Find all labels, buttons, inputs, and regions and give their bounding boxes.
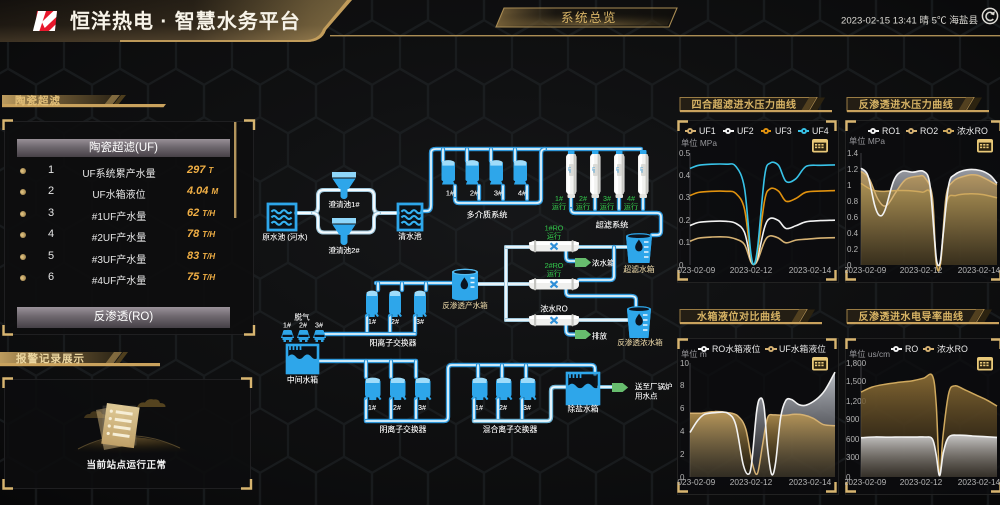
svg-text:RO1: RO1: [882, 126, 900, 136]
svg-text:1#: 1#: [283, 321, 291, 330]
svg-text:1: 1: [847, 181, 852, 190]
svg-text:运行: 运行: [576, 202, 590, 211]
svg-text:单位 us/cm: 单位 us/cm: [849, 349, 890, 359]
svg-text:原水池 (河水): 原水池 (河水): [262, 232, 308, 242]
svg-text:单位 MPa: 单位 MPa: [681, 138, 717, 148]
svg-text:反渗透浓水箱: 反渗透浓水箱: [617, 337, 663, 347]
svg-text:2#: 2#: [393, 403, 401, 412]
svg-text:2#: 2#: [470, 189, 479, 198]
svg-text:陶瓷超滤: 陶瓷超滤: [15, 94, 61, 107]
svg-text:2023-02-09: 2023-02-09: [677, 477, 716, 487]
svg-text:单位 m: 单位 m: [681, 349, 707, 359]
svg-text:2#: 2#: [299, 321, 307, 330]
svg-text:900: 900: [846, 415, 860, 424]
svg-text:1,800: 1,800: [846, 359, 867, 368]
svg-text:多介质系统: 多介质系统: [467, 210, 508, 220]
svg-text:1#: 1#: [368, 403, 376, 412]
svg-text:四合超滤进水压力曲线: 四合超滤进水压力曲线: [692, 98, 797, 111]
svg-text:运行: 运行: [547, 269, 561, 278]
svg-text:0.6: 0.6: [847, 213, 859, 222]
svg-text:用水点: 用水点: [635, 391, 658, 401]
svg-text:RO: RO: [905, 344, 918, 354]
svg-text:UF水箱液位: UF水箱液位: [779, 343, 826, 354]
svg-text:UF1: UF1: [699, 126, 716, 136]
svg-text:UF4: UF4: [812, 126, 829, 136]
svg-text:阳离子交换器: 阳离子交换器: [370, 338, 417, 348]
svg-text:0.2: 0.2: [847, 245, 859, 254]
svg-text:2#: 2#: [391, 317, 399, 326]
svg-text:1,500: 1,500: [846, 377, 867, 386]
svg-text:2023-02-14: 2023-02-14: [958, 477, 1000, 487]
svg-text:UF: UF: [591, 167, 596, 173]
svg-text:2023-02-09: 2023-02-09: [677, 265, 716, 275]
svg-text:阴离子交换器: 阴离子交换器: [380, 424, 427, 434]
svg-text:0.1: 0.1: [679, 238, 691, 247]
svg-text:浓水RO: 浓水RO: [540, 304, 567, 314]
svg-text:1.2: 1.2: [847, 165, 859, 174]
svg-text:2023-02-15 13:41 晴 5℃ 海盐县: 2023-02-15 13:41 晴 5℃ 海盐县: [841, 15, 978, 27]
svg-text:3#: 3#: [416, 317, 424, 326]
svg-text:恒洋热电 · 智慧水务平台: 恒洋热电 · 智慧水务平台: [70, 9, 301, 33]
svg-text:0.4: 0.4: [847, 229, 859, 238]
svg-text:UF: UF: [567, 167, 572, 173]
svg-text:0.3: 0.3: [679, 193, 691, 202]
svg-text:清水池: 清水池: [398, 231, 422, 241]
svg-text:单位 MPa: 单位 MPa: [849, 136, 885, 146]
svg-text:8: 8: [680, 381, 685, 390]
svg-text:运行: 运行: [600, 202, 614, 211]
svg-text:混合离子交换器: 混合离子交换器: [483, 424, 538, 434]
svg-text:2023-02-09: 2023-02-09: [845, 265, 887, 275]
svg-text:运行: 运行: [547, 232, 561, 241]
svg-text:2: 2: [680, 450, 685, 459]
svg-text:600: 600: [846, 435, 860, 444]
svg-text:4: 4: [680, 427, 685, 436]
svg-text:1#: 1#: [446, 189, 455, 198]
svg-text:2023-02-14: 2023-02-14: [789, 477, 832, 487]
svg-text:UF: UF: [615, 167, 620, 173]
svg-text:6: 6: [680, 404, 685, 413]
svg-text:反渗透进水压力曲线: 反渗透进水压力曲线: [859, 98, 954, 111]
svg-text:300: 300: [846, 453, 860, 462]
svg-text:澄清池1#: 澄清池1#: [328, 199, 360, 209]
svg-text:2023-02-09: 2023-02-09: [845, 477, 887, 487]
svg-text:3#: 3#: [418, 403, 426, 412]
svg-text:0.5: 0.5: [679, 149, 691, 158]
svg-text:除盐水箱: 除盐水箱: [567, 404, 598, 414]
svg-text:2023-02-14: 2023-02-14: [789, 265, 832, 275]
svg-text:中间水箱: 中间水箱: [287, 375, 318, 385]
svg-text:2#: 2#: [499, 403, 507, 412]
svg-text:浓水箱: 浓水箱: [592, 258, 615, 268]
svg-text:浓水RO: 浓水RO: [937, 343, 968, 354]
svg-text:0.4: 0.4: [679, 171, 691, 180]
svg-text:澄清池2#: 澄清池2#: [328, 245, 360, 255]
svg-text:0.2: 0.2: [679, 216, 691, 225]
svg-text:1#: 1#: [368, 317, 376, 326]
svg-text:报警记录展示: 报警记录展示: [16, 352, 85, 365]
svg-text:2023-02-12: 2023-02-12: [730, 477, 773, 487]
svg-text:浓水RO: 浓水RO: [957, 125, 988, 136]
svg-text:反渗透产水箱: 反渗透产水箱: [442, 300, 488, 310]
svg-text:4#: 4#: [518, 189, 527, 198]
svg-text:RO2: RO2: [920, 126, 938, 136]
svg-text:反渗透进水电导率曲线: 反渗透进水电导率曲线: [859, 310, 964, 323]
svg-text:3#: 3#: [494, 189, 503, 198]
svg-text:运行: 运行: [552, 202, 566, 211]
svg-text:1.4: 1.4: [847, 149, 859, 158]
svg-text:运行: 运行: [624, 202, 638, 211]
svg-text:超滤系统: 超滤系统: [596, 220, 629, 230]
svg-text:系统总览: 系统总览: [561, 10, 617, 25]
svg-text:UF2: UF2: [737, 126, 754, 136]
svg-text:排放: 排放: [592, 331, 607, 341]
svg-text:UF: UF: [639, 167, 644, 173]
svg-text:1#: 1#: [475, 403, 483, 412]
svg-text:2023-02-12: 2023-02-12: [730, 265, 773, 275]
svg-text:3#: 3#: [523, 403, 531, 412]
svg-text:10: 10: [680, 359, 689, 368]
svg-text:0.8: 0.8: [847, 197, 859, 206]
svg-text:超滤水箱: 超滤水箱: [623, 264, 654, 274]
svg-text:水箱液位对比曲线: 水箱液位对比曲线: [696, 310, 781, 323]
svg-text:2023-02-14: 2023-02-14: [958, 265, 1000, 275]
svg-text:UF3: UF3: [775, 126, 792, 136]
svg-text:2023-02-12: 2023-02-12: [900, 477, 943, 487]
svg-text:RO水箱液位: RO水箱液位: [712, 343, 761, 354]
svg-text:送至厂锅炉: 送至厂锅炉: [635, 381, 673, 391]
svg-text:3#: 3#: [315, 321, 323, 330]
